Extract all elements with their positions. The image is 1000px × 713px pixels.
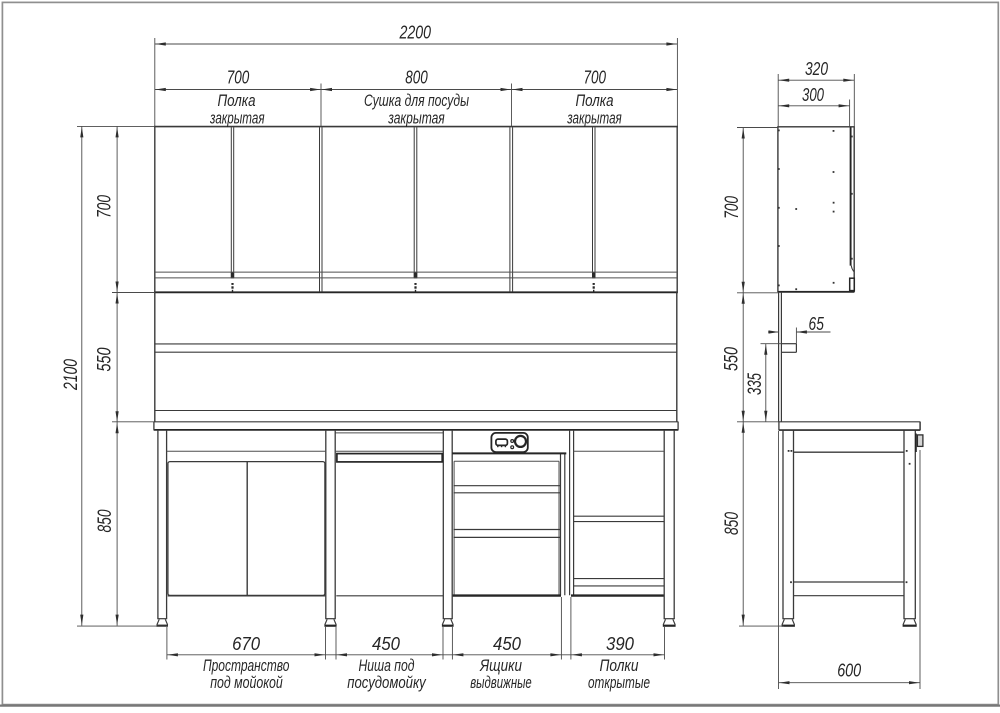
svg-text:335: 335: [745, 373, 766, 395]
svg-text:Ящики: Ящики: [479, 657, 522, 675]
svg-text:под мойокой: под мойокой: [210, 674, 283, 692]
svg-text:закрытая: закрытая: [567, 109, 622, 127]
svg-text:390: 390: [606, 634, 634, 654]
svg-text:2100: 2100: [61, 359, 82, 391]
svg-text:Сушка для посуды: Сушка для посуды: [364, 92, 469, 110]
svg-text:670: 670: [232, 634, 260, 654]
svg-text:600: 600: [837, 661, 861, 681]
svg-text:700: 700: [227, 68, 250, 88]
svg-text:2200: 2200: [399, 23, 431, 43]
svg-text:выдвижные: выдвижные: [470, 674, 532, 692]
svg-text:Ниша под: Ниша под: [359, 657, 415, 675]
svg-text:закрытая: закрытая: [388, 109, 445, 127]
svg-text:посудомойку: посудомойку: [347, 674, 427, 692]
svg-text:Пространство: Пространство: [203, 657, 290, 675]
svg-text:550: 550: [722, 347, 743, 371]
svg-text:Полка: Полка: [576, 92, 614, 110]
svg-text:700: 700: [584, 68, 607, 88]
svg-text:закрытая: закрытая: [209, 109, 264, 127]
svg-text:700: 700: [95, 195, 116, 218]
svg-text:открытые: открытые: [588, 674, 650, 692]
svg-text:550: 550: [95, 347, 116, 371]
svg-text:Полки: Полки: [600, 657, 639, 675]
svg-text:65: 65: [809, 314, 825, 334]
svg-text:800: 800: [405, 68, 428, 88]
svg-text:320: 320: [805, 59, 828, 79]
svg-text:850: 850: [722, 512, 743, 535]
svg-text:450: 450: [493, 634, 521, 654]
svg-text:Полка: Полка: [218, 92, 256, 110]
svg-text:450: 450: [372, 634, 400, 654]
svg-text:850: 850: [95, 509, 116, 532]
svg-text:300: 300: [802, 85, 824, 105]
svg-text:700: 700: [722, 196, 743, 219]
